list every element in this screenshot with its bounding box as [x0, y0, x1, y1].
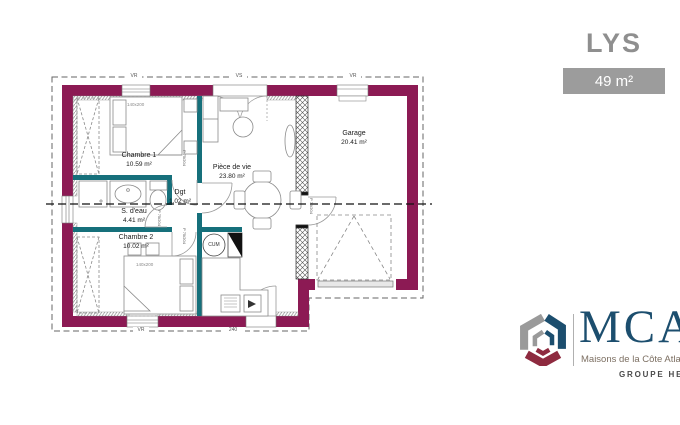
chair: [234, 191, 245, 209]
chair: [253, 218, 271, 229]
sofa-seat: [220, 98, 248, 111]
brand-wordmark: MCA: [579, 300, 680, 354]
mca-cube-icon: [516, 312, 570, 366]
brand-block: MCA Maisons de la Côte Atlantique GROUPE…: [516, 306, 680, 392]
door-size-label: P 75/204: [309, 198, 313, 214]
wall-unit: [285, 125, 295, 157]
model-name: LYS: [560, 28, 668, 59]
garage-separator-wall: [296, 96, 308, 279]
bed-size-label: 140x200: [136, 262, 153, 267]
shower: [79, 181, 107, 207]
kitchen-sink: [221, 295, 240, 312]
window-type-label: VR: [133, 327, 149, 334]
room-label-dgt: Dgt 1.02 m²: [158, 189, 202, 206]
nightstand: [184, 99, 197, 112]
furniture-sdeau: [79, 181, 167, 210]
room-label-chambre1: Chambre 1 10.59 m²: [103, 152, 175, 169]
room-label-sdeau: S. d'eau 4.41 m²: [103, 208, 165, 225]
room-label-garage: Garage 20.41 m²: [322, 130, 386, 147]
brand-subtitle: Maisons de la Côte Atlantique: [581, 354, 680, 365]
door-size-label: P 75/204: [182, 228, 186, 244]
group-label: GROUPE HEXAOM: [619, 370, 680, 379]
chair: [290, 191, 301, 209]
window-type-label: VR: [126, 73, 142, 80]
door-size-label: P 75/204: [157, 210, 161, 226]
water-heater-label: CUM: [202, 242, 226, 248]
room-label-piece-de-vie: Pièce de vie 23.80 m²: [193, 164, 271, 181]
dimension-label: 240: [221, 327, 245, 334]
logo-divider: [573, 314, 574, 366]
surface-badge: 49 m²: [563, 68, 665, 94]
coffee-table: [233, 117, 253, 137]
door-size-label: P 75/204: [182, 150, 186, 166]
room-label-chambre2: Chambre 2 10.02 m²: [98, 234, 174, 251]
floorplan-sheet: Chambre 1 10.59 m² S. d'eau 4.41 m² Cham…: [0, 0, 680, 425]
dining-table: [243, 181, 281, 219]
bed-size-label: 140x200: [127, 102, 144, 107]
window-type-label: VR: [345, 73, 361, 80]
garage-door-swing: [317, 215, 391, 280]
window-type-label: VS: [231, 73, 247, 80]
